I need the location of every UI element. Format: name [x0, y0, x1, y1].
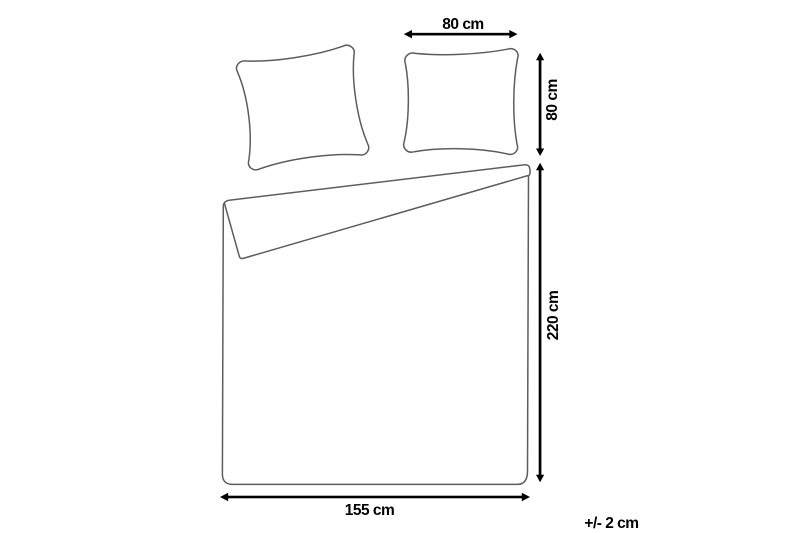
svg-text:220 cm: 220 cm	[545, 291, 562, 341]
svg-text:80 cm: 80 cm	[544, 79, 561, 120]
svg-text:155 cm: 155 cm	[345, 502, 395, 519]
svg-text:+/- 2 cm: +/- 2 cm	[584, 515, 638, 532]
svg-text:80 cm: 80 cm	[442, 16, 483, 33]
